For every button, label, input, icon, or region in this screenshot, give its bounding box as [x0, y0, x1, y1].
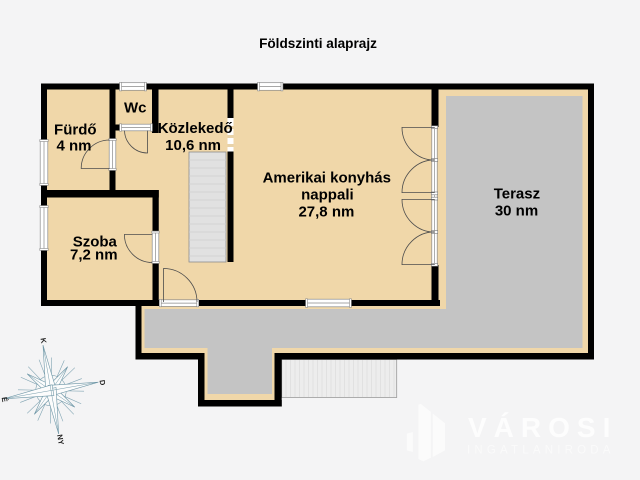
svg-text:4 nm: 4 nm: [56, 138, 91, 155]
svg-text:nappali: nappali: [301, 187, 354, 204]
svg-text:30 nm: 30 nm: [495, 203, 538, 220]
svg-text:7,2 nm: 7,2 nm: [70, 247, 118, 264]
svg-text:27,8 nm: 27,8 nm: [298, 204, 354, 221]
svg-text:NY: NY: [55, 434, 66, 446]
svg-text:Terasz: Terasz: [494, 186, 540, 203]
svg-text:Amerikai konyhás: Amerikai konyhás: [263, 170, 391, 187]
svg-text:Földszinti alaprajz: Földszinti alaprajz: [259, 36, 377, 51]
svg-text:10,6 nm: 10,6 nm: [165, 137, 221, 154]
svg-text:VÁROSI: VÁROSI: [468, 412, 617, 443]
svg-text:INGATLANIRODA: INGATLANIRODA: [467, 445, 615, 457]
svg-text:Fürdő: Fürdő: [54, 121, 97, 138]
svg-text:Közlekedő: Közlekedő: [158, 120, 233, 137]
svg-text:Wc: Wc: [124, 100, 147, 117]
